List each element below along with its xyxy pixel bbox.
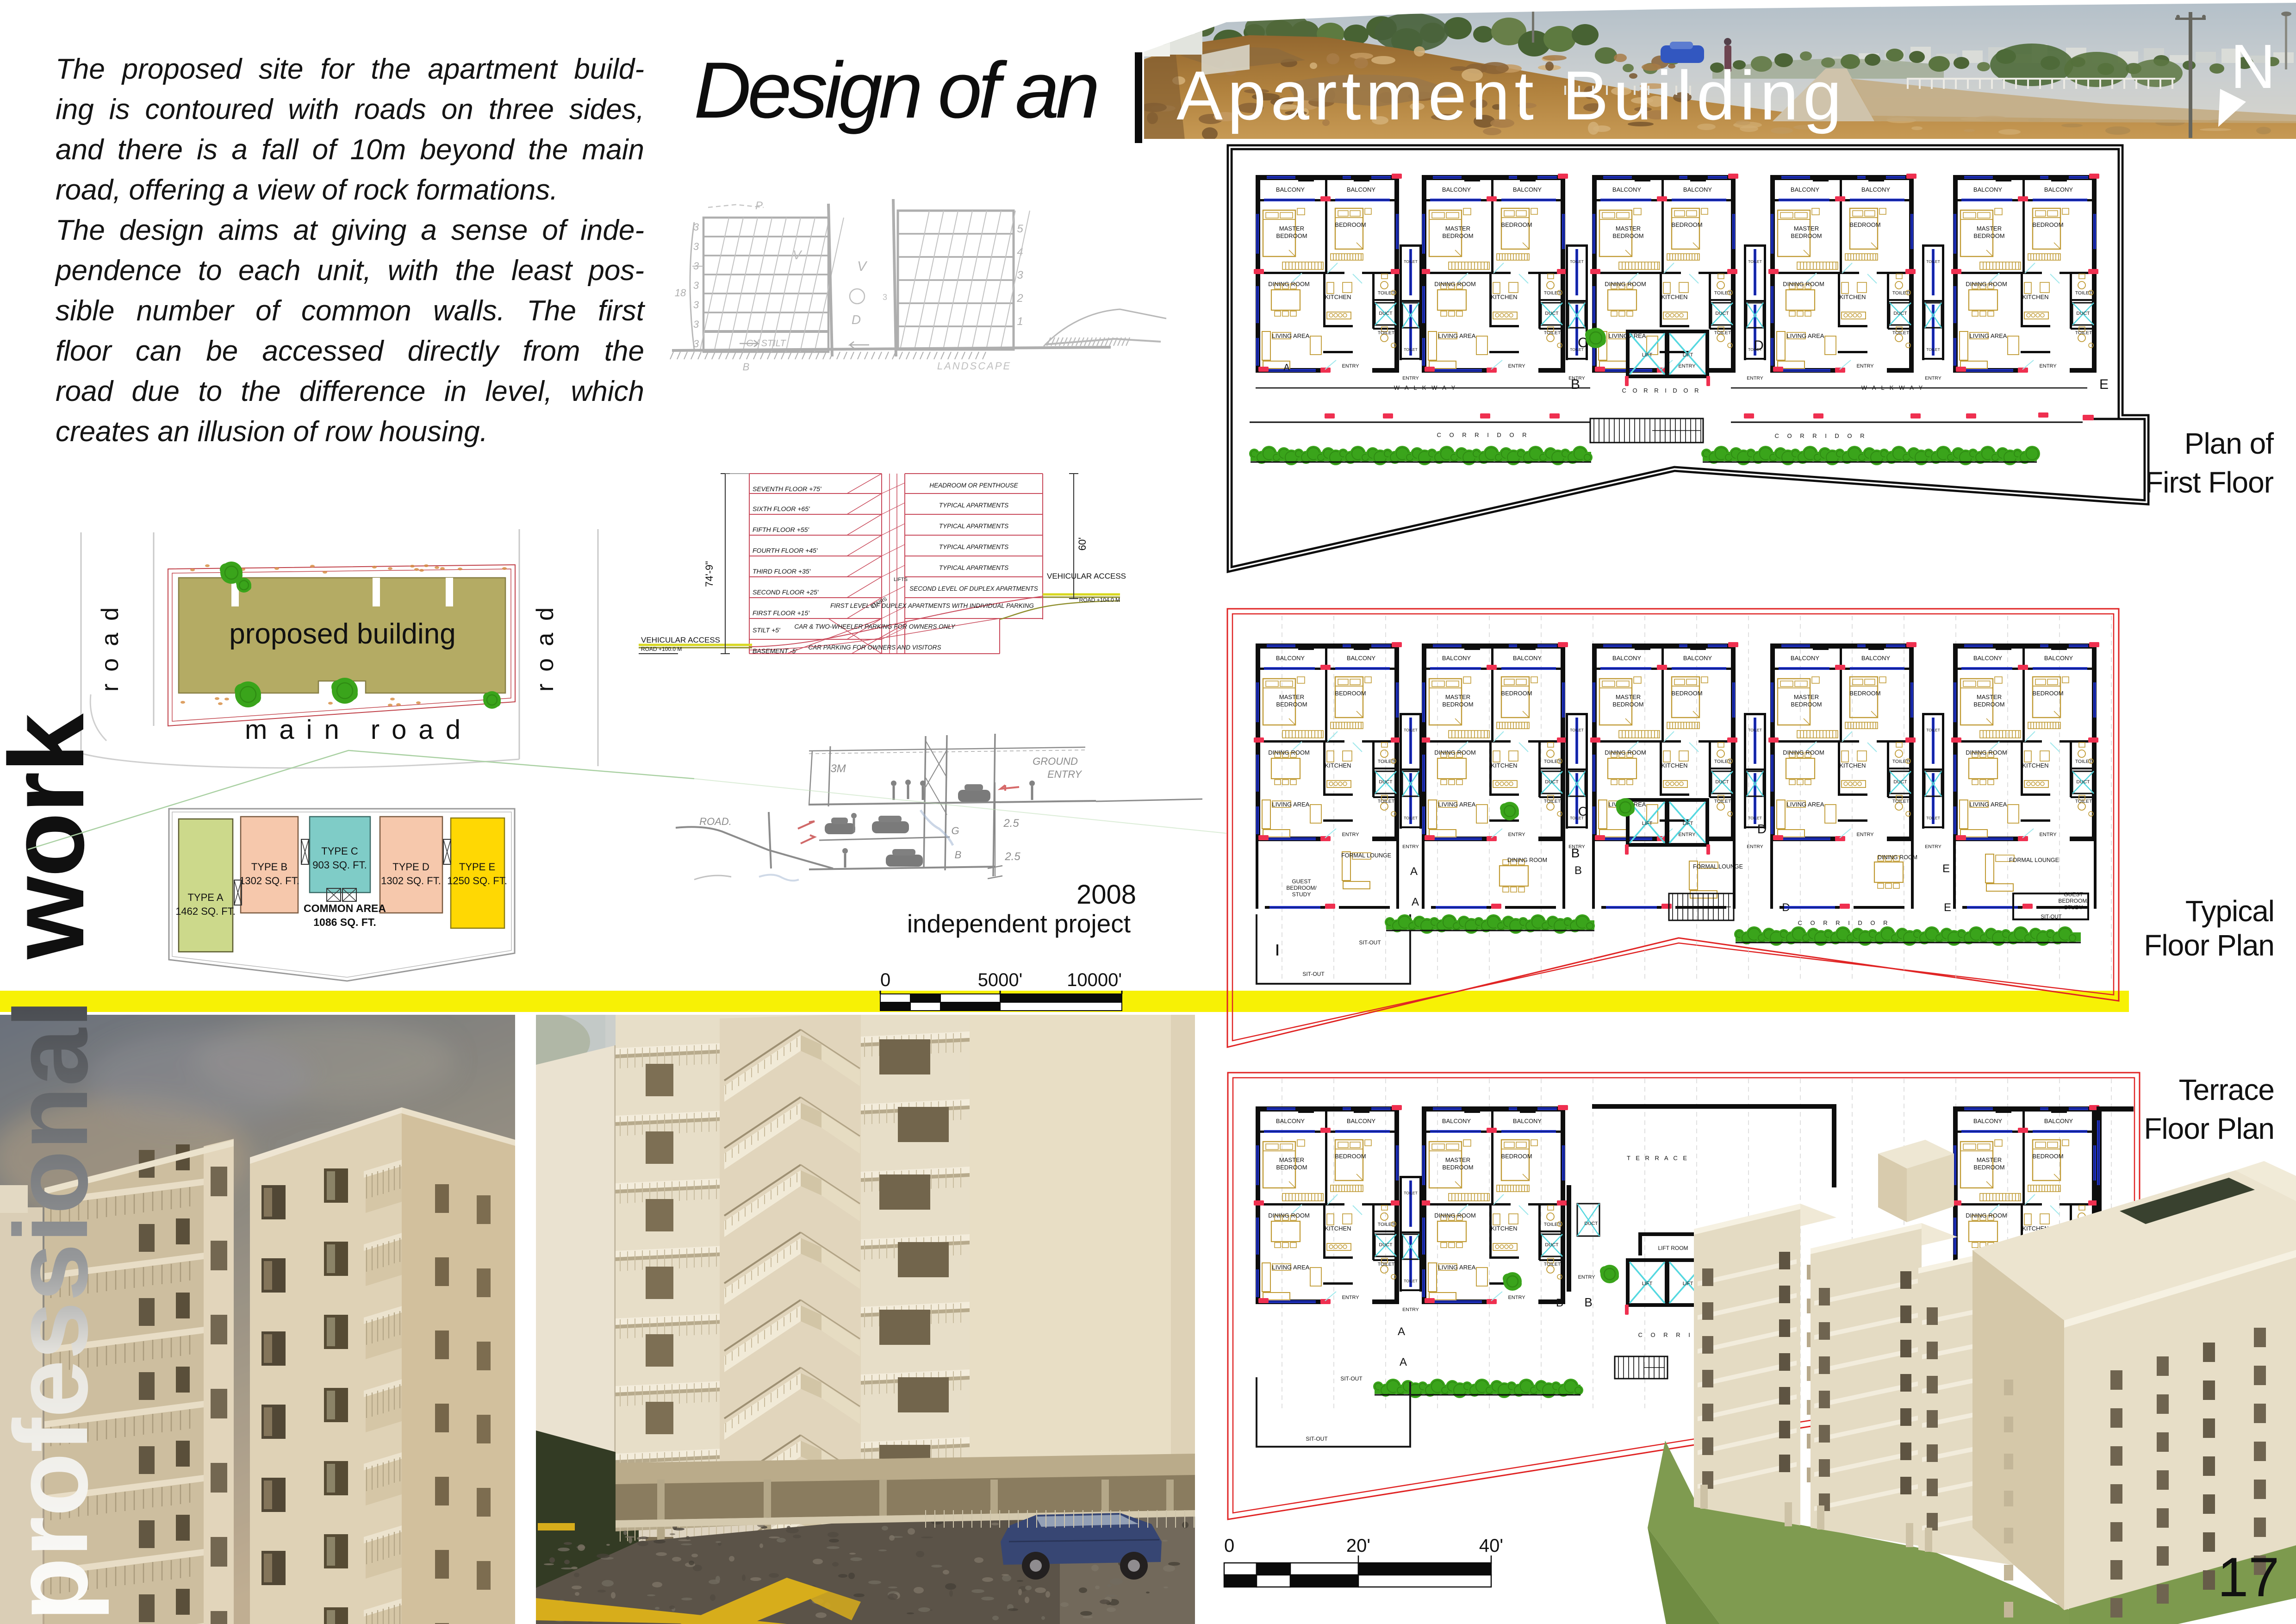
svg-text:TYPE C: TYPE C xyxy=(321,845,358,857)
svg-text:TOILET: TOILET xyxy=(1714,759,1731,764)
svg-text:ENTRY: ENTRY xyxy=(1047,768,1082,780)
svg-text:BALCONY: BALCONY xyxy=(2044,655,2073,662)
svg-text:MASTER: MASTER xyxy=(1616,225,1641,232)
svg-text:BASEMENT -5': BASEMENT -5' xyxy=(753,647,797,655)
svg-text:3: 3 xyxy=(693,338,699,350)
svg-text:DINING ROOM: DINING ROOM xyxy=(1268,1212,1310,1219)
svg-text:ENTRY: ENTRY xyxy=(1342,363,1359,369)
svg-text:COMMON AREA: COMMON AREA xyxy=(304,902,386,914)
svg-text:KITCHEN: KITCHEN xyxy=(1661,294,1687,300)
svg-text:TYPICAL APARTMENTS: TYPICAL APARTMENTS xyxy=(939,502,1008,509)
svg-text:LIVING AREA: LIVING AREA xyxy=(1272,1264,1310,1271)
svg-text:TOILET: TOILET xyxy=(1378,1222,1395,1227)
svg-text:BEDROOM/: BEDROOM/ xyxy=(2058,898,2089,904)
svg-text:ENTRY: ENTRY xyxy=(1856,363,1874,369)
svg-text:1302 SQ. FT.: 1302 SQ. FT. xyxy=(381,875,441,887)
svg-text:DUCT: DUCT xyxy=(2076,779,2090,785)
svg-text:DUCT: DUCT xyxy=(1379,311,1393,316)
svg-text:BALCONY: BALCONY xyxy=(1276,186,1305,193)
svg-text:ENTRY: ENTRY xyxy=(1342,1295,1359,1300)
svg-text:TOILET: TOILET xyxy=(1926,816,1940,820)
svg-text:DUCT: DUCT xyxy=(1715,311,1729,316)
svg-text:DUCT: DUCT xyxy=(1893,779,1907,785)
svg-text:TOILET: TOILET xyxy=(1378,759,1395,764)
svg-text:LIFTS: LIFTS xyxy=(894,577,908,582)
svg-text:BALCONY: BALCONY xyxy=(1683,186,1712,193)
svg-text:SIXTH FLOOR +65': SIXTH FLOOR +65' xyxy=(753,505,810,512)
svg-text:TOILET: TOILET xyxy=(1544,330,1561,336)
svg-text:CAR PARKING FOR OWNERS AND VIS: CAR PARKING FOR OWNERS AND VISITORS xyxy=(808,644,941,651)
svg-text:TYPICAL APARTMENTS: TYPICAL APARTMENTS xyxy=(939,543,1008,550)
svg-text:BALCONY: BALCONY xyxy=(1276,1118,1305,1124)
svg-text:5: 5 xyxy=(1017,223,1023,235)
svg-text:HEADROOM OR PENTHOUSE: HEADROOM OR PENTHOUSE xyxy=(929,482,1018,489)
svg-text:0: 0 xyxy=(1224,1536,1234,1556)
svg-text:2.5: 2.5 xyxy=(1004,850,1020,863)
svg-text:Typical: Typical xyxy=(2185,894,2274,928)
svg-text:SIT-OUT: SIT-OUT xyxy=(1359,939,1381,946)
svg-text:DUCT: DUCT xyxy=(1715,779,1729,785)
svg-text:BALCONY: BALCONY xyxy=(1612,655,1641,662)
svg-text:3: 3 xyxy=(1017,269,1023,281)
svg-text:MASTER: MASTER xyxy=(1977,225,2002,232)
svg-text:DUCT: DUCT xyxy=(1545,311,1559,316)
svg-text:TOILET: TOILET xyxy=(1748,259,1762,264)
svg-text:D: D xyxy=(1757,822,1767,836)
svg-text:ENTRY: ENTRY xyxy=(1678,363,1696,369)
svg-text:ENTRY: ENTRY xyxy=(1678,832,1696,837)
svg-text:TOILET: TOILET xyxy=(2075,330,2092,336)
svg-text:THIRD FLOOR +35': THIRD FLOOR +35' xyxy=(753,568,811,575)
svg-text:LIVING AREA: LIVING AREA xyxy=(1438,332,1476,339)
svg-text:TOILET: TOILET xyxy=(2075,799,2092,804)
svg-text:FIFTH FLOOR +55': FIFTH FLOOR +55' xyxy=(753,526,809,533)
svg-text:LANDSCAPE: LANDSCAPE xyxy=(937,360,1011,372)
svg-text:V: V xyxy=(857,259,868,274)
svg-text:20': 20' xyxy=(1346,1536,1370,1556)
svg-text:DINING ROOM: DINING ROOM xyxy=(1783,749,1824,756)
svg-text:TOILET: TOILET xyxy=(1378,290,1395,296)
svg-text:TOILET: TOILET xyxy=(1404,728,1418,732)
svg-text:BALCONY: BALCONY xyxy=(1276,655,1305,662)
svg-text:LIVING AREA: LIVING AREA xyxy=(1272,801,1310,808)
svg-text:Terrace: Terrace xyxy=(2179,1073,2274,1106)
svg-text:ENTRY: ENTRY xyxy=(1925,375,1941,381)
svg-text:LIVING AREA: LIVING AREA xyxy=(1787,801,1824,808)
svg-text:BEDROOM: BEDROOM xyxy=(1973,701,2004,708)
svg-text:TYPICAL APARTMENTS: TYPICAL APARTMENTS xyxy=(939,564,1008,571)
svg-text:FIRST LEVEL OF DUPLEX APARTMEN: FIRST LEVEL OF DUPLEX APARTMENTS WITH IN… xyxy=(830,602,1034,609)
svg-text:LIVING AREA: LIVING AREA xyxy=(1272,332,1310,339)
svg-text:KITCHEN: KITCHEN xyxy=(2022,294,2048,300)
svg-text:professional: professional xyxy=(0,999,109,1621)
svg-text:DUCT: DUCT xyxy=(1379,1242,1393,1248)
svg-text:KITCHEN: KITCHEN xyxy=(1491,294,1517,300)
svg-text:KITCHEN: KITCHEN xyxy=(2022,762,2048,769)
svg-text:A: A xyxy=(1400,1356,1407,1368)
svg-text:TOILET: TOILET xyxy=(1714,290,1731,296)
svg-text:DUCT: DUCT xyxy=(1545,1242,1559,1248)
svg-text:STUDY: STUDY xyxy=(2064,904,2083,911)
svg-text:TOILET: TOILET xyxy=(1570,728,1584,732)
svg-text:2008: 2008 xyxy=(1076,880,1136,910)
svg-text:2: 2 xyxy=(1016,292,1023,305)
svg-text:KITCHEN: KITCHEN xyxy=(1325,1225,1351,1232)
svg-text:BEDROOM: BEDROOM xyxy=(1849,221,1880,228)
svg-text:DINING ROOM: DINING ROOM xyxy=(1268,281,1310,287)
svg-text:74'-9": 74'-9" xyxy=(703,561,715,587)
svg-text:BEDROOM: BEDROOM xyxy=(1973,232,2004,239)
svg-text:3M: 3M xyxy=(830,762,846,775)
svg-text:BEDROOM: BEDROOM xyxy=(1671,221,1702,228)
svg-text:DINING ROOM: DINING ROOM xyxy=(1783,281,1824,287)
svg-text:BALCONY: BALCONY xyxy=(2044,186,2073,193)
svg-text:BALCONY: BALCONY xyxy=(1973,655,2002,662)
svg-text:BALCONY: BALCONY xyxy=(1442,1118,1471,1124)
svg-text:FOURTH FLOOR +45': FOURTH FLOOR +45' xyxy=(753,547,818,554)
svg-text:FORMAL LOUNGE: FORMAL LOUNGE xyxy=(1341,852,1391,859)
svg-text:TOILET: TOILET xyxy=(1404,259,1418,264)
svg-text:KITCHEN: KITCHEN xyxy=(1325,294,1351,300)
svg-text:1: 1 xyxy=(1017,315,1023,328)
svg-text:TOILET: TOILET xyxy=(1544,799,1561,804)
svg-text:proposed building: proposed building xyxy=(229,618,456,650)
svg-text:ROAD.: ROAD. xyxy=(699,816,732,827)
svg-text:Apartment Building: Apartment Building xyxy=(1176,56,1846,134)
svg-text:BEDROOM: BEDROOM xyxy=(1442,1164,1473,1171)
svg-text:DINING ROOM: DINING ROOM xyxy=(1966,281,2007,287)
svg-text:TYPE A: TYPE A xyxy=(187,892,223,903)
svg-text:KITCHEN: KITCHEN xyxy=(1839,294,1866,300)
svg-text:DINING ROOM: DINING ROOM xyxy=(1507,857,1547,863)
svg-text:BALCONY: BALCONY xyxy=(1791,655,1819,662)
svg-text:LIVING AREA: LIVING AREA xyxy=(1787,332,1824,339)
svg-text:TOILET: TOILET xyxy=(1892,799,1910,804)
svg-text:ENTRY: ENTRY xyxy=(1342,832,1359,837)
svg-text:First Floor: First Floor xyxy=(2145,466,2274,499)
svg-text:E: E xyxy=(1944,901,1951,914)
svg-text:DUCT: DUCT xyxy=(1893,311,1907,316)
svg-text:BEDROOM: BEDROOM xyxy=(1335,690,1366,697)
svg-text:ENTRY: ENTRY xyxy=(1856,832,1874,837)
svg-text:BALCONY: BALCONY xyxy=(1973,1118,2002,1124)
svg-text:ENTRY: ENTRY xyxy=(1402,375,1419,381)
svg-text:TOILET: TOILET xyxy=(1570,259,1584,264)
svg-text:LIFT: LIFT xyxy=(1683,1281,1693,1287)
svg-text:STILT +5': STILT +5' xyxy=(753,626,781,634)
svg-text:BALCONY: BALCONY xyxy=(1442,655,1471,662)
svg-text:MASTER: MASTER xyxy=(1445,1156,1470,1163)
svg-text:LIVING AREA: LIVING AREA xyxy=(1970,332,2007,339)
svg-text:1462 SQ. FT.: 1462 SQ. FT. xyxy=(175,906,236,917)
svg-text:B: B xyxy=(1571,377,1580,392)
svg-text:ENTRY: ENTRY xyxy=(2039,363,2057,369)
svg-text:BEDROOM: BEDROOM xyxy=(1276,232,1307,239)
svg-text:MASTER: MASTER xyxy=(1977,693,2002,700)
svg-text:TYPE D: TYPE D xyxy=(392,861,429,873)
svg-text:BEDROOM: BEDROOM xyxy=(1442,701,1473,708)
svg-text:TOILET: TOILET xyxy=(1714,799,1731,804)
svg-text:BEDROOM: BEDROOM xyxy=(1501,221,1532,228)
svg-text:BEDROOM: BEDROOM xyxy=(1442,232,1473,239)
svg-text:DINING ROOM: DINING ROOM xyxy=(1878,854,1917,861)
svg-text:SIT-OUT: SIT-OUT xyxy=(1306,1436,1328,1442)
svg-text:DUCT: DUCT xyxy=(1379,779,1393,785)
svg-text:SECOND LEVEL OF DUPLEX APARTME: SECOND LEVEL OF DUPLEX APARTMENTS xyxy=(909,585,1038,592)
svg-text:40': 40' xyxy=(1479,1536,1503,1556)
svg-text:independent project: independent project xyxy=(907,909,1131,938)
svg-text:LIVING AREA: LIVING AREA xyxy=(1438,801,1476,808)
svg-text:LIFT: LIFT xyxy=(1683,352,1693,358)
svg-text:LIFT: LIFT xyxy=(1683,821,1693,826)
svg-text:TOILET: TOILET xyxy=(2075,290,2092,296)
svg-text:G: G xyxy=(951,825,959,837)
svg-text:MASTER: MASTER xyxy=(1977,1156,2002,1163)
svg-text:BALCONY: BALCONY xyxy=(1513,186,1542,193)
svg-text:ENTRY: ENTRY xyxy=(1747,375,1763,381)
svg-text:main road: main road xyxy=(245,715,473,745)
svg-text:A: A xyxy=(1412,896,1419,908)
svg-text:E: E xyxy=(1942,862,1950,875)
svg-text:BALCONY: BALCONY xyxy=(1442,186,1471,193)
svg-text:3: 3 xyxy=(693,299,699,311)
svg-text:BEDROOM: BEDROOM xyxy=(1501,1153,1532,1160)
svg-text:ROAD +100.0 M: ROAD +100.0 M xyxy=(641,646,682,652)
svg-text:MASTER: MASTER xyxy=(1279,693,1304,700)
svg-text:ENTRY: ENTRY xyxy=(1402,844,1419,849)
svg-text:3: 3 xyxy=(693,280,699,291)
svg-text:B: B xyxy=(1556,1297,1563,1309)
svg-text:BEDROOM: BEDROOM xyxy=(2032,690,2063,697)
svg-text:BEDROOM: BEDROOM xyxy=(1973,1164,2004,1171)
svg-text:ENTRY: ENTRY xyxy=(2039,832,2057,837)
svg-text:ENTRY: ENTRY xyxy=(1925,844,1941,849)
svg-text:DINING ROOM: DINING ROOM xyxy=(1966,749,2007,756)
svg-text:BALCONY: BALCONY xyxy=(1347,1118,1375,1124)
svg-text:2.5: 2.5 xyxy=(1003,817,1019,830)
svg-text:TYPE E: TYPE E xyxy=(459,861,495,873)
svg-text:DUCT: DUCT xyxy=(1584,1221,1598,1226)
svg-text:road: road xyxy=(97,595,124,692)
svg-text:D: D xyxy=(852,312,861,327)
svg-text:BEDROOM: BEDROOM xyxy=(1501,690,1532,697)
svg-text:LIFT ROOM: LIFT ROOM xyxy=(1658,1245,1688,1251)
svg-text:B: B xyxy=(1574,864,1582,877)
svg-text:B: B xyxy=(1584,1295,1592,1309)
svg-text:KITCHEN: KITCHEN xyxy=(1491,762,1517,769)
svg-text:TYPE B: TYPE B xyxy=(251,861,287,873)
svg-text:C O R R I D O R: C O R R I D O R xyxy=(1437,431,1530,438)
svg-text:A: A xyxy=(1410,865,1418,878)
svg-text:BEDROOM: BEDROOM xyxy=(1791,701,1822,708)
svg-text:MASTER: MASTER xyxy=(1794,225,1819,232)
svg-text:A: A xyxy=(1283,362,1290,373)
svg-text:LIVING AREA: LIVING AREA xyxy=(1970,801,2007,808)
svg-text:BALCONY: BALCONY xyxy=(1513,655,1542,662)
svg-text:1302 SQ. FT.: 1302 SQ. FT. xyxy=(239,875,299,887)
svg-text:DINING ROOM: DINING ROOM xyxy=(1434,749,1476,756)
svg-text:18: 18 xyxy=(675,287,686,299)
svg-text:BALCONY: BALCONY xyxy=(1612,186,1641,193)
svg-text:KITCHEN: KITCHEN xyxy=(1325,762,1351,769)
svg-text:N: N xyxy=(2230,31,2276,101)
svg-text:5000': 5000' xyxy=(978,970,1023,990)
svg-text:60': 60' xyxy=(1076,537,1088,551)
svg-text:LIVING AREA: LIVING AREA xyxy=(1438,1264,1476,1271)
svg-text:Floor Plan: Floor Plan xyxy=(2144,1112,2274,1145)
svg-text:D: D xyxy=(1754,338,1764,353)
svg-text:GUEST: GUEST xyxy=(1292,878,1311,885)
svg-text:C O R R I D O R: C O R R I D O R xyxy=(1774,432,1867,439)
svg-text:B: B xyxy=(743,361,750,373)
svg-text:17: 17 xyxy=(2218,1546,2279,1608)
svg-text:T E R R A C E: T E R R A C E xyxy=(1627,1155,1689,1162)
svg-text:3: 3 xyxy=(693,221,699,233)
svg-text:BALCONY: BALCONY xyxy=(1347,186,1375,193)
svg-text:DINING ROOM: DINING ROOM xyxy=(1434,281,1476,287)
svg-text:MASTER: MASTER xyxy=(1445,693,1470,700)
svg-text:ENTRY: ENTRY xyxy=(1747,844,1763,849)
svg-text:TOILET: TOILET xyxy=(1714,330,1731,336)
svg-text:TOILET: TOILET xyxy=(1378,1262,1395,1267)
svg-text:MASTER: MASTER xyxy=(1616,693,1641,700)
svg-text:TOILET: TOILET xyxy=(1404,816,1418,820)
svg-text:BALCONY: BALCONY xyxy=(1513,1118,1542,1124)
svg-text:BEDROOM: BEDROOM xyxy=(1335,221,1366,228)
svg-text:TOILET: TOILET xyxy=(1926,259,1940,264)
svg-text:TOILET: TOILET xyxy=(1378,799,1395,804)
svg-text:BEDROOM: BEDROOM xyxy=(1612,701,1643,708)
svg-text:10000': 10000' xyxy=(1067,970,1122,990)
svg-text:Floor Plan: Floor Plan xyxy=(2144,929,2274,962)
svg-text:DINING ROOM: DINING ROOM xyxy=(1268,749,1310,756)
svg-text:W A L K W A Y: W A L K W A Y xyxy=(1861,384,1925,391)
svg-text:Plan of: Plan of xyxy=(2184,427,2274,460)
svg-text:C O R R I D O R: C O R R I D O R xyxy=(1622,387,1701,394)
svg-text:BEDROOM: BEDROOM xyxy=(1276,1164,1307,1171)
svg-text:TOILET: TOILET xyxy=(2075,759,2092,764)
svg-text:C: C xyxy=(1578,804,1587,818)
svg-text:STUDY: STUDY xyxy=(1292,891,1311,898)
svg-text:903 SQ. FT.: 903 SQ. FT. xyxy=(312,859,367,871)
svg-text:TOILET: TOILET xyxy=(1544,1262,1561,1267)
svg-text:MASTER: MASTER xyxy=(1279,1156,1304,1163)
svg-text:BEDROOM: BEDROOM xyxy=(2032,1153,2063,1160)
svg-text:TOILET: TOILET xyxy=(1378,330,1395,336)
svg-text:BEDROOM: BEDROOM xyxy=(1612,232,1643,239)
svg-text:MASTER: MASTER xyxy=(1279,225,1304,232)
svg-text:DUCT: DUCT xyxy=(1545,779,1559,785)
svg-text:DINING ROOM: DINING ROOM xyxy=(1605,281,1646,287)
svg-text:ENTRY: ENTRY xyxy=(1508,363,1525,369)
svg-text:TOILET: TOILET xyxy=(1892,330,1910,336)
svg-text:road: road xyxy=(532,595,559,692)
svg-text:3: 3 xyxy=(693,319,699,330)
svg-text:ENTRY: ENTRY xyxy=(1578,1274,1595,1280)
svg-text:TOILET: TOILET xyxy=(1544,759,1561,764)
svg-text:TOILET: TOILET xyxy=(1748,816,1762,820)
svg-text:SECOND FLOOR +25': SECOND FLOOR +25' xyxy=(753,588,819,596)
svg-text:BALCONY: BALCONY xyxy=(1347,655,1375,662)
svg-text:TOILET: TOILET xyxy=(1892,759,1910,764)
svg-text:BEDROOM/: BEDROOM/ xyxy=(1286,885,1317,891)
svg-text:3: 3 xyxy=(883,293,887,302)
svg-text:BALCONY: BALCONY xyxy=(1861,655,1890,662)
svg-text:ENTRY: ENTRY xyxy=(1508,832,1525,837)
svg-text:MASTER: MASTER xyxy=(1794,693,1819,700)
svg-text:TOILET: TOILET xyxy=(1544,1222,1561,1227)
svg-text:BALCONY: BALCONY xyxy=(2044,1118,2073,1124)
svg-text:LIFT: LIFT xyxy=(1642,352,1653,358)
svg-text:DINING ROOM: DINING ROOM xyxy=(1605,749,1646,756)
svg-text:BEDROOM: BEDROOM xyxy=(1791,232,1822,239)
svg-text:BALCONY: BALCONY xyxy=(1791,186,1819,193)
svg-text:work: work xyxy=(0,713,106,960)
svg-text:BEDROOM: BEDROOM xyxy=(1671,690,1702,697)
svg-text:C O R R I D O R: C O R R I D O R xyxy=(1798,919,1891,926)
svg-text:VEHICULAR ACCESS: VEHICULAR ACCESS xyxy=(641,636,720,644)
svg-text:BALCONY: BALCONY xyxy=(1683,655,1712,662)
svg-text:B: B xyxy=(955,849,962,861)
svg-text:A: A xyxy=(1398,1325,1405,1338)
svg-text:SIT-OUT: SIT-OUT xyxy=(1340,1375,1363,1382)
svg-text:VEHICULAR ACCESS: VEHICULAR ACCESS xyxy=(1047,572,1126,581)
svg-text:FIRST FLOOR +15': FIRST FLOOR +15' xyxy=(753,609,810,617)
svg-text:FORMAL LOUNGE: FORMAL LOUNGE xyxy=(2009,857,2059,863)
svg-text:SEVENTH FLOOR +75': SEVENTH FLOOR +75' xyxy=(753,485,822,493)
svg-text:LIFT: LIFT xyxy=(1642,821,1653,826)
svg-text:3: 3 xyxy=(693,241,699,252)
svg-text:DINING ROOM: DINING ROOM xyxy=(1966,1212,2007,1219)
svg-text:TOILET: TOILET xyxy=(1926,347,1940,352)
svg-text:KITCHEN: KITCHEN xyxy=(1661,762,1687,769)
svg-text:W A L K W A Y: W A L K W A Y xyxy=(1394,384,1457,391)
svg-text:GROUND: GROUND xyxy=(1033,756,1078,767)
svg-text:FORMAL LOUNGE: FORMAL LOUNGE xyxy=(1693,863,1743,870)
svg-text:BEDROOM: BEDROOM xyxy=(1849,690,1880,697)
svg-text:E: E xyxy=(2099,377,2109,392)
svg-text:0: 0 xyxy=(880,970,890,990)
svg-text:BALCONY: BALCONY xyxy=(1861,186,1890,193)
svg-text:KITCHEN: KITCHEN xyxy=(1839,762,1866,769)
svg-text:BALCONY: BALCONY xyxy=(1973,186,2002,193)
svg-text:BEDROOM: BEDROOM xyxy=(2032,221,2063,228)
svg-text:DINING ROOM: DINING ROOM xyxy=(1434,1212,1476,1219)
svg-text:TOILET: TOILET xyxy=(1404,1279,1418,1283)
svg-text:ENTRY: ENTRY xyxy=(1508,1295,1525,1300)
svg-text:TOILET: TOILET xyxy=(1892,290,1910,296)
svg-text:KITCHEN: KITCHEN xyxy=(1491,1225,1517,1232)
svg-text:TOILET: TOILET xyxy=(1748,728,1762,732)
svg-text:TOILET: TOILET xyxy=(1544,290,1561,296)
svg-text:TYPICAL APARTMENTS: TYPICAL APARTMENTS xyxy=(939,523,1008,530)
svg-text:CAR & TWO-WHEELER PARKING FOR: CAR & TWO-WHEELER PARKING FOR OWNERS ONL… xyxy=(794,623,955,630)
svg-text:B: B xyxy=(1571,846,1580,860)
svg-text:P: P xyxy=(755,200,763,212)
svg-text:1086 SQ. FT.: 1086 SQ. FT. xyxy=(313,916,376,928)
svg-text:TOILET: TOILET xyxy=(1404,1191,1418,1195)
svg-text:ROAD +104.0 M: ROAD +104.0 M xyxy=(1079,597,1120,603)
svg-text:V: V xyxy=(793,248,803,262)
svg-text:DUCT: DUCT xyxy=(2076,311,2090,316)
svg-text:BEDROOM: BEDROOM xyxy=(1335,1153,1366,1160)
svg-text:LIFT: LIFT xyxy=(1642,1281,1653,1287)
svg-text:TOILET: TOILET xyxy=(1926,728,1940,732)
svg-text:BEDROOM: BEDROOM xyxy=(1276,701,1307,708)
svg-text:TOILET: TOILET xyxy=(1404,347,1418,352)
svg-text:ENTRY: ENTRY xyxy=(1402,1307,1419,1312)
svg-text:1250 SQ. FT.: 1250 SQ. FT. xyxy=(447,875,507,887)
